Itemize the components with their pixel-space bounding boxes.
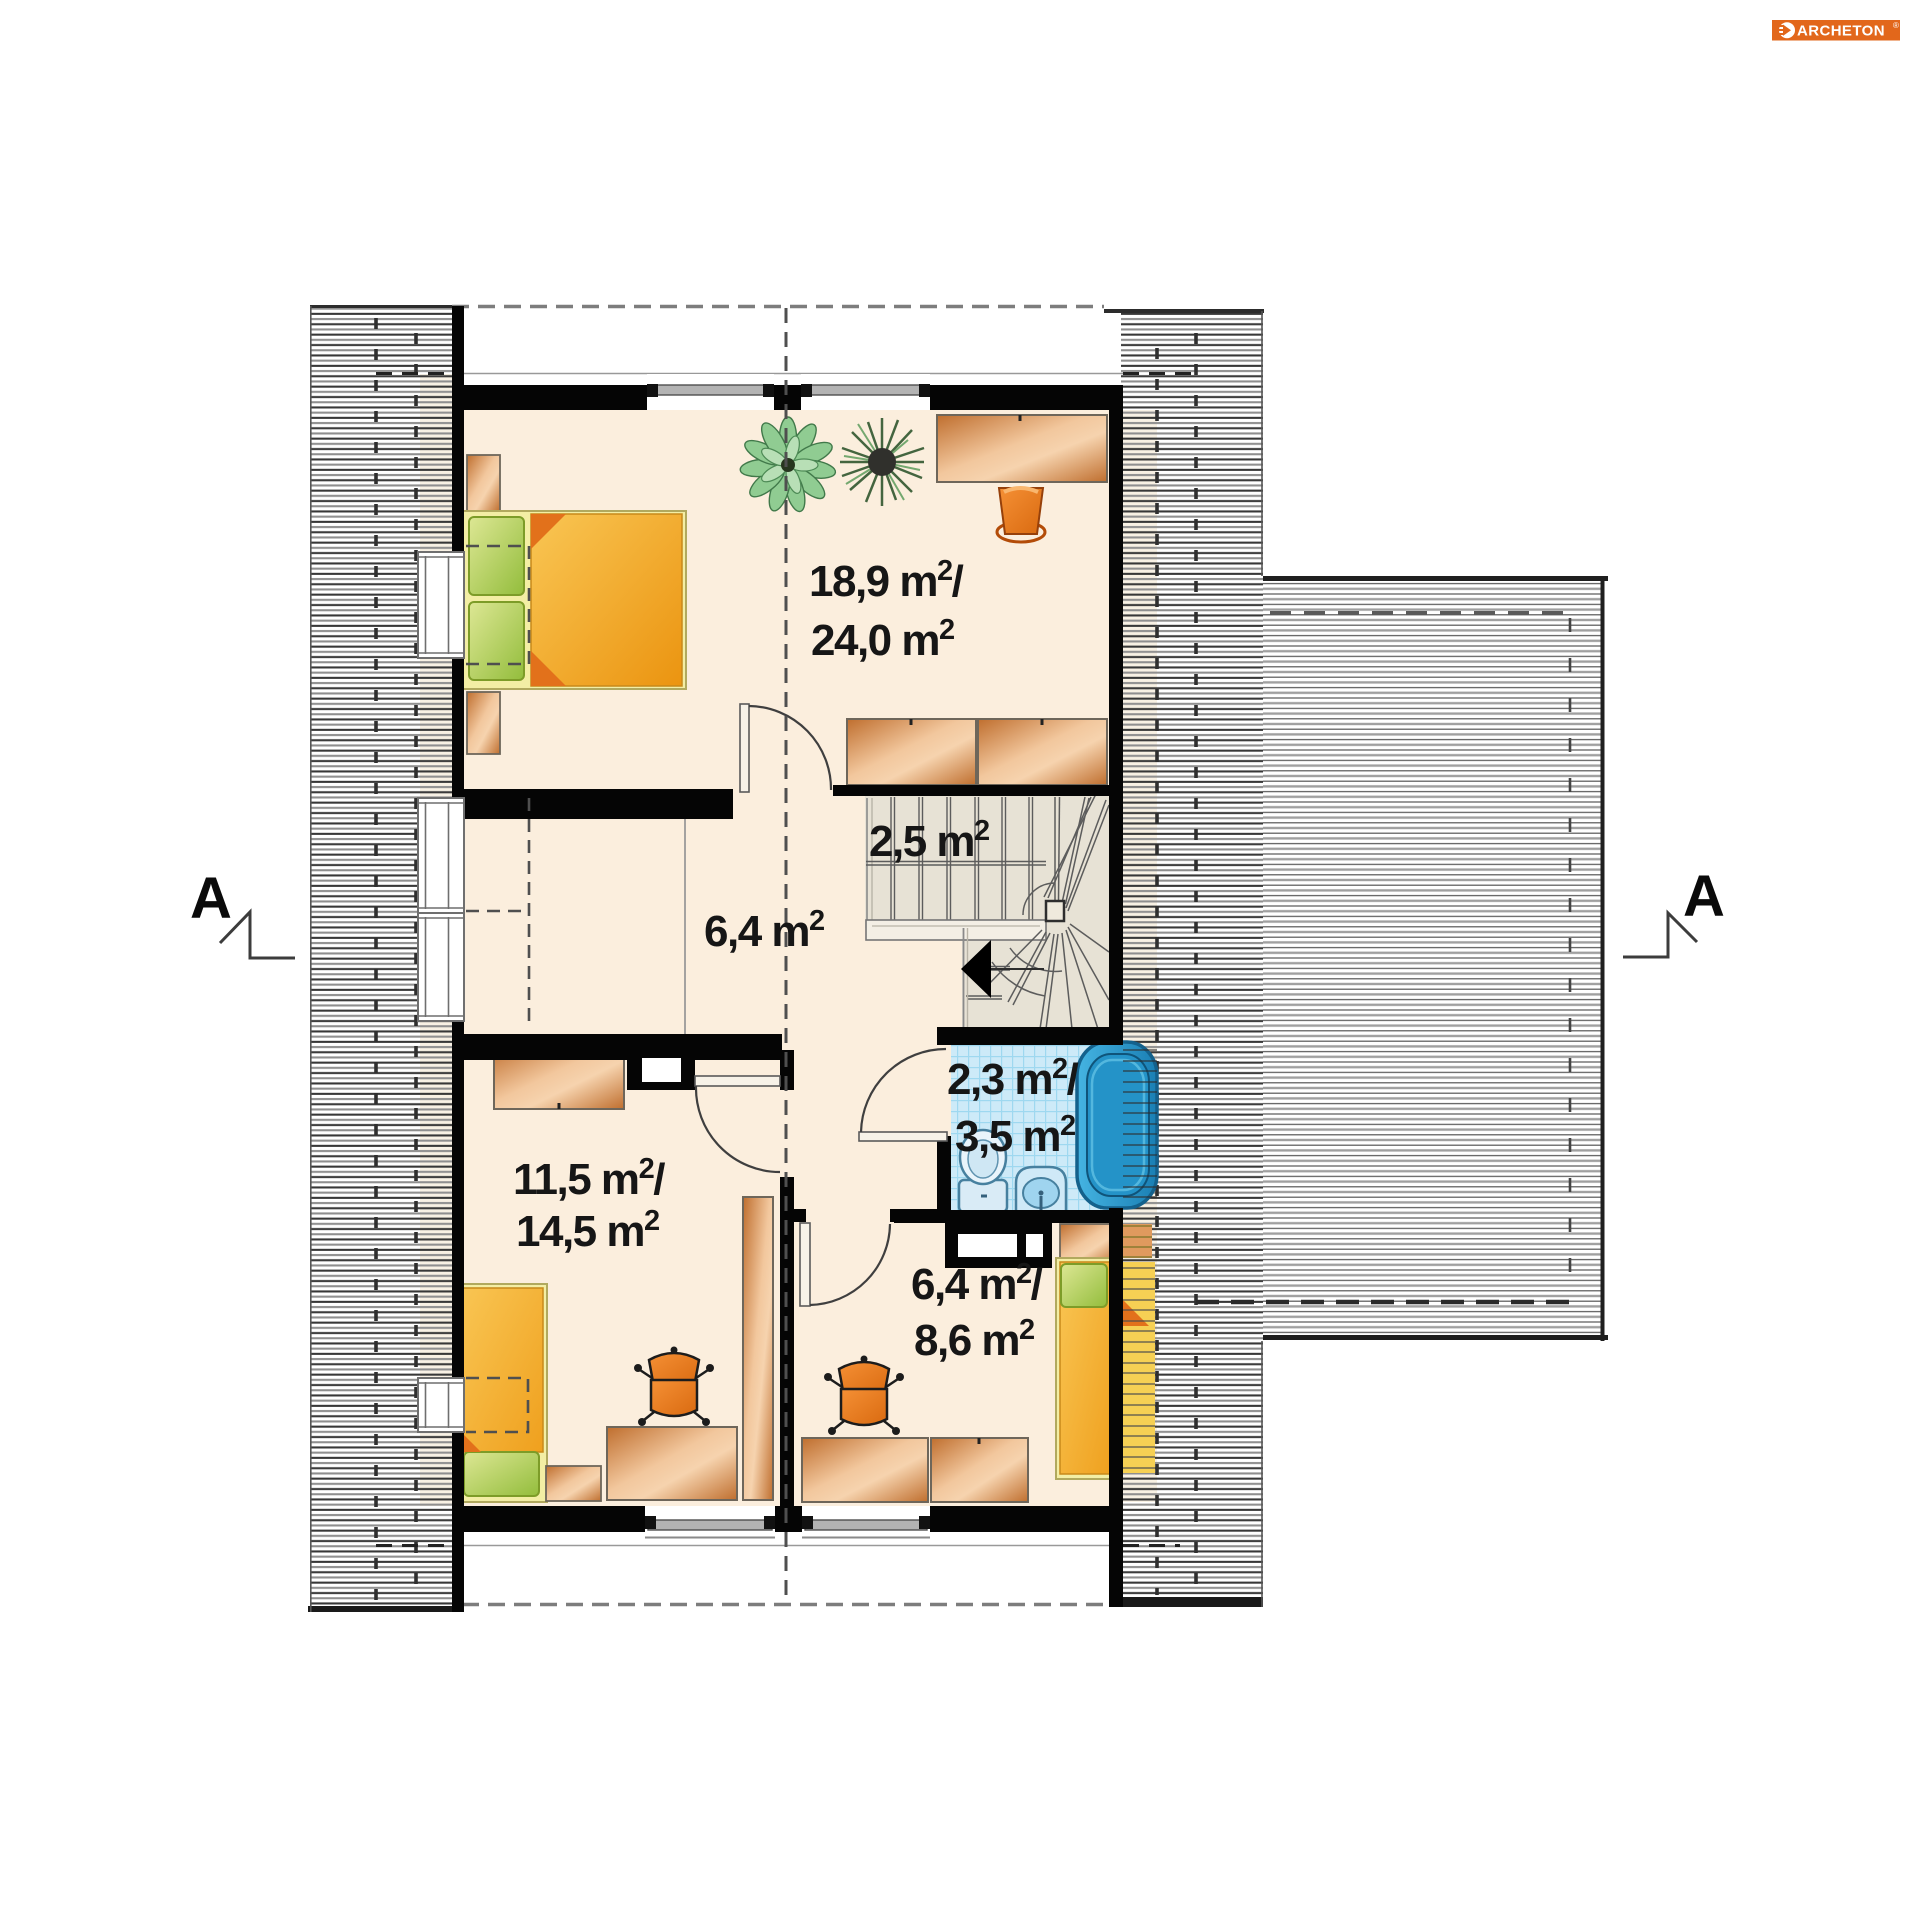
svg-text:6,4 m2: 6,4 m2 [704,905,824,956]
svg-text:24,0 m2: 24,0 m2 [811,614,954,665]
svg-text:A: A [1683,864,1725,929]
svg-text:14,5 m2: 14,5 m2 [516,1205,659,1256]
svg-text:2,5 m2: 2,5 m2 [869,815,989,866]
svg-text:8,6 m2: 8,6 m2 [914,1314,1034,1365]
svg-text:A: A [190,866,232,931]
svg-text:ARCHETON: ARCHETON [1797,23,1885,40]
svg-text:®: ® [1893,21,1899,30]
svg-text:3,5 m2: 3,5 m2 [955,1110,1075,1161]
